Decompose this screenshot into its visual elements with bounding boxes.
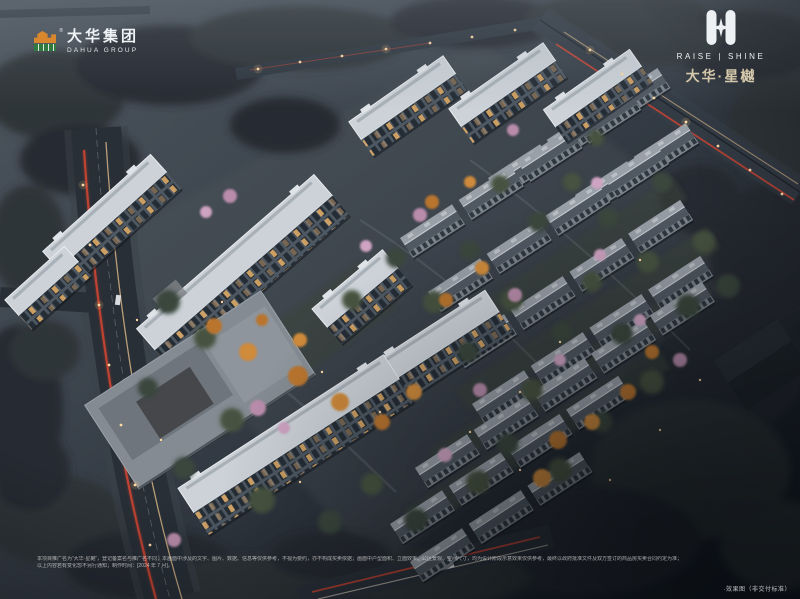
render-watermark: ·效果图（非交付标准） (724, 584, 792, 593)
dahua-group-logo: ® 大华集团 DAHUA GROUP (33, 28, 139, 54)
project-tagline: RAISE | SHINE (652, 52, 790, 61)
disclaimer-line-1: 本项目推广名为“大华·星樾”，登记备案名与推广名不同；本画面中涉及的文字、图片、… (37, 556, 757, 563)
star-emblem-icon (706, 9, 736, 47)
disclaimer: 本项目推广名为“大华·星樾”，登记备案名与推广名不同；本画面中涉及的文字、图片、… (37, 556, 757, 570)
dahua-name-en: DAHUA GROUP (67, 47, 139, 54)
registered-mark: ® (59, 28, 63, 34)
project-logo: RAISE | SHINE 大华·星樾 (652, 9, 790, 86)
render-canvas: ® 大华集团 DAHUA GROUP RAISE | SHINE 大华·星樾 本… (0, 0, 800, 599)
corner-shadow (0, 0, 800, 599)
project-name: 大华·星樾 (652, 66, 790, 86)
dahua-name-cn: 大华集团 (67, 28, 139, 45)
dahua-logo-icon: ® (33, 30, 58, 53)
aerial-scene (0, 0, 800, 599)
disclaimer-line-2: 以上内容若有变化恕不另行通知；制作时间：[2024 年 7 月]。 (37, 563, 757, 570)
